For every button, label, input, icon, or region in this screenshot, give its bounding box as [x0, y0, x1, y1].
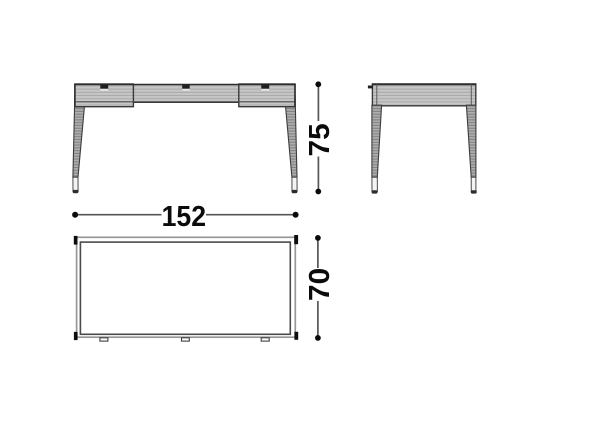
- svg-text:152: 152: [162, 201, 206, 233]
- svg-text:75: 75: [304, 123, 336, 156]
- svg-text:70: 70: [304, 268, 336, 301]
